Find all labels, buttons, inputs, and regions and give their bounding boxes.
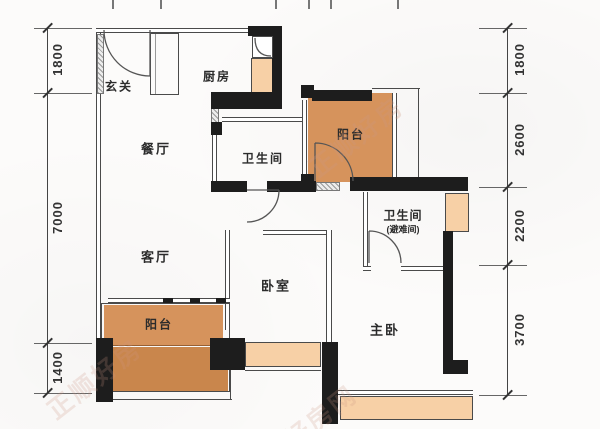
wall-segment [302,100,307,176]
entry-door-arc [104,30,150,76]
top-dim-tick [397,0,399,9]
dim-label-right-2200: 2200 [512,209,527,242]
dimension-extension [34,393,92,394]
window [222,117,303,122]
bath2-door-arc [369,231,401,263]
dim-label-left-1400: 1400 [50,351,65,384]
wall-segment [418,88,419,178]
dimension-line-right [507,28,508,395]
dimension-extension [479,28,527,29]
room-label-dining: 餐厅 [141,139,171,158]
dimension-line-left [47,28,48,393]
master-bay-window [340,396,473,420]
top-dim-tick [160,0,162,9]
dim-label-right-2600: 2600 [512,123,527,156]
wall-segment [211,122,222,135]
kitchen-counter-fill [251,58,274,95]
top-dim-tick [275,0,277,9]
wall-segment [312,90,372,101]
window [316,182,340,191]
wall-segment [443,360,468,374]
wall-segment [96,338,113,402]
wall-segment [322,342,338,424]
room-label-entry: 玄关 [105,78,133,95]
dim-label-left-1800: 1800 [50,43,65,76]
room-label-living: 客厅 [141,247,171,266]
wall-segment [211,92,282,109]
wall-segment [372,88,420,89]
top-dim-tick [308,0,310,9]
dimension-extension [479,395,527,396]
balcony-divider [104,345,225,346]
room-label-master: 主卧 [370,320,400,339]
kitchen-cabinet-line [155,34,156,94]
dimension-extension [34,93,92,94]
wall-segment [245,370,321,371]
dimension-extension [34,28,92,29]
room-label-kitchen: 厨房 [203,68,231,85]
wall-segment [212,134,217,182]
bath1-door-arc [247,190,279,222]
sink-icon [252,36,273,58]
dimension-extension [479,93,527,94]
wall-segment [443,231,453,372]
top-dim-tick [330,0,332,9]
wall-segment [263,230,332,235]
dimension-extension [34,343,92,344]
wall-segment [350,177,468,191]
room-label-bath1: 卫生间 [242,150,284,167]
dim-label-right-3700: 3700 [512,313,527,346]
bedroom-bay-window [245,342,321,367]
dim-label-left-7000: 7000 [50,201,65,234]
wall-segment [363,192,368,270]
dim-label-right-1800: 1800 [512,43,527,76]
wall-segment [392,93,397,178]
room-label-bath2: 卫生间 [383,207,422,224]
floorplan-canvas: 玄关 厨房 餐厅 卫生间 阳台 客厅 卧室 主卧 卫生间 (避难间) 阳台 18… [0,0,600,429]
dimension-extension [479,265,527,266]
window [97,34,104,94]
wall-segment [96,399,232,400]
room-label-balcony-bottom: 阳台 [145,316,173,333]
wall-segment [326,230,332,342]
room-label-balcony-top: 阳台 [337,126,365,143]
wall-segment [211,181,247,192]
room-sublabel-bath2: (避难间) [387,223,420,236]
wall-segment [272,34,282,92]
room-label-bedroom: 卧室 [261,276,291,295]
wall-segment [210,338,245,370]
wall-segment [363,266,371,271]
wall-segment [267,181,316,192]
wall-segment [332,390,473,395]
bath2-bay-window [445,193,469,232]
top-dim-tick [112,0,114,9]
wall-segment [401,266,448,271]
wall-segment [230,370,231,400]
dimension-extension [479,187,527,188]
